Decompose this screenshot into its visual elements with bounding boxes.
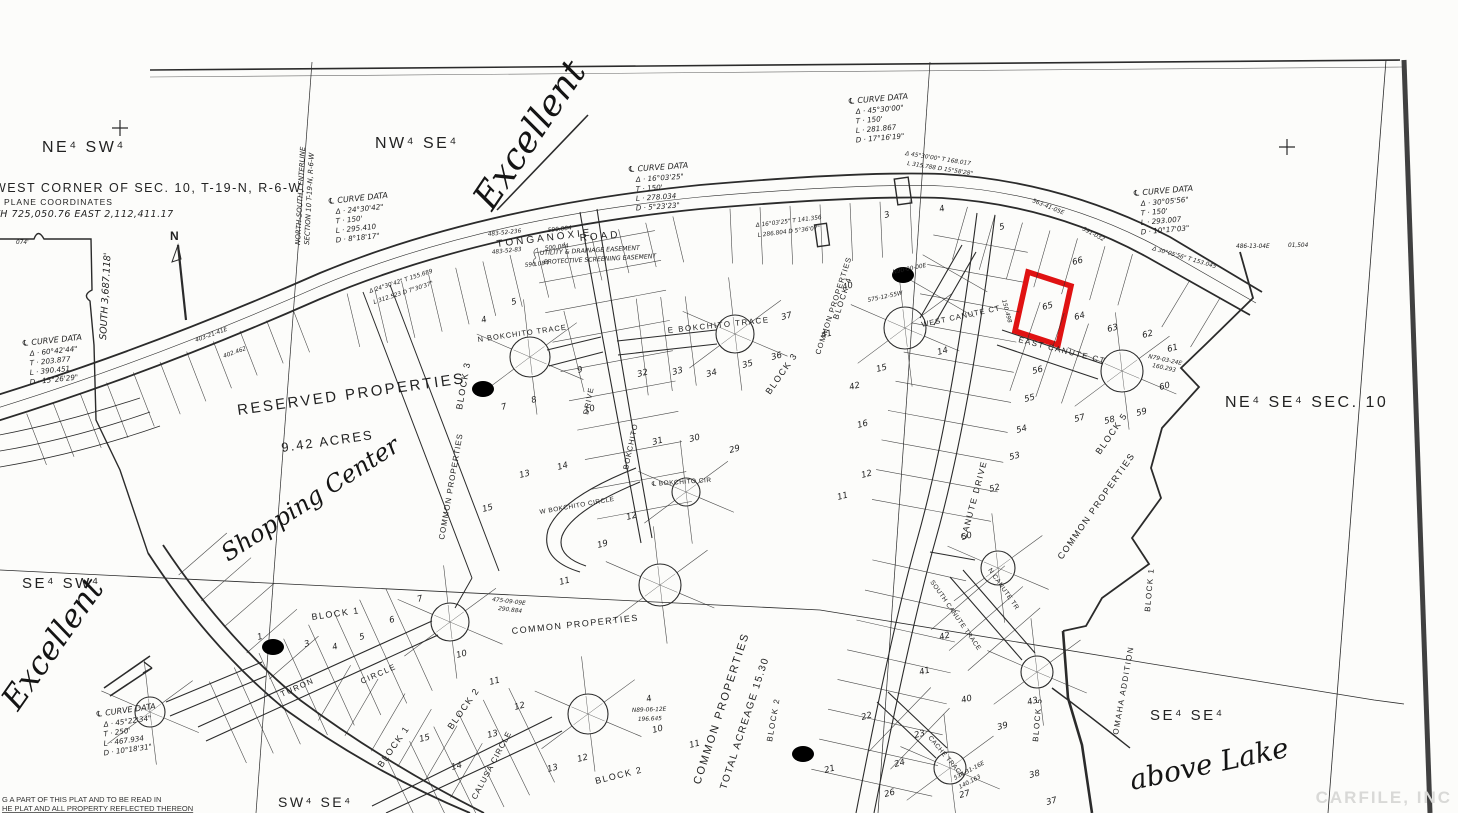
lot-line	[318, 665, 350, 720]
lot-number: 5	[510, 297, 518, 308]
lot-line	[959, 362, 1014, 372]
bulb-spoke	[645, 585, 660, 596]
lot-number-circle	[262, 639, 284, 655]
lot-line	[952, 207, 967, 260]
lot-line	[955, 273, 987, 292]
lot-line	[152, 727, 157, 765]
lot-number: 13	[486, 728, 499, 740]
block-label: BLOCK 2	[594, 764, 644, 785]
area-label: COMMON PROPERTIES	[813, 256, 853, 356]
lot-line	[876, 470, 937, 481]
lot-line	[730, 209, 733, 264]
bulb-spoke	[530, 346, 545, 357]
lot-line	[688, 506, 693, 544]
section-label: NW⁴ SE⁴	[375, 135, 459, 152]
lot-line	[1191, 298, 1220, 347]
lot-line	[820, 205, 823, 264]
street-label: ℄ BOKCHITO CIR	[651, 477, 712, 488]
lot-line	[948, 546, 983, 561]
lot-line	[483, 261, 496, 315]
lot-line	[162, 681, 193, 703]
lot-number: 37	[1045, 795, 1059, 808]
lot-line	[872, 783, 932, 796]
bulb-spoke	[888, 320, 905, 328]
lot-number: 7	[500, 402, 508, 413]
lot-line	[1162, 280, 1190, 327]
lot-number: 41	[820, 328, 833, 340]
bulb-spoke	[903, 309, 905, 328]
lot-number: 19	[596, 538, 609, 550]
area-label: COMMON PROPERTIES	[437, 432, 465, 540]
handwriting-strokes	[104, 115, 1130, 748]
lot-line	[910, 200, 912, 253]
lot-line	[931, 510, 990, 521]
lot-line	[532, 735, 555, 782]
lot-line	[790, 206, 793, 265]
lot-line	[383, 652, 407, 704]
lot-number: 34	[705, 367, 718, 379]
lot-line	[535, 691, 570, 706]
bulb-spoke	[450, 622, 466, 629]
bulb-spoke	[890, 328, 905, 339]
lot-line	[661, 297, 667, 344]
bulb-spoke	[450, 612, 464, 622]
lot-line	[942, 451, 1003, 462]
lot-line	[900, 747, 935, 762]
south-dimension-label: SOUTH 3,687.118'	[98, 252, 114, 340]
lot-number: 5	[998, 222, 1006, 233]
section-label: NE⁴ SE⁴ SEC. 10	[1225, 394, 1388, 411]
lot-line	[673, 216, 684, 262]
plus-mark	[112, 120, 128, 136]
bulb-spoke	[574, 714, 588, 725]
lot-line	[892, 692, 947, 704]
lot-number: 32	[636, 367, 649, 379]
lot-number: 24	[893, 757, 906, 769]
lot-number: 3	[883, 210, 891, 221]
lot-line	[345, 679, 378, 736]
bulb-spoke	[450, 622, 452, 639]
street-label: SOUTH CANUTE TRACE	[928, 579, 982, 652]
bulb-spoke	[643, 577, 660, 585]
lot-line	[689, 345, 719, 368]
dimension-label: N89-06-12E	[632, 707, 667, 714]
lot-line	[509, 688, 532, 735]
bulb-spoke	[686, 485, 696, 492]
lot-number: 11	[688, 738, 701, 750]
lot-number: 41	[918, 665, 931, 677]
lot-line	[653, 526, 657, 564]
bulb-spoke	[436, 622, 450, 632]
lot-number: 57	[1073, 412, 1087, 425]
lot-line	[539, 272, 600, 283]
lot-number: 15	[418, 732, 431, 744]
street-label: E BOKCHITO TRACE	[667, 315, 770, 335]
lot-line	[254, 710, 274, 753]
lot-number: 1	[256, 632, 264, 643]
bulb-spoke	[1122, 371, 1139, 378]
bulb-spoke	[1025, 672, 1037, 681]
bulb-spoke	[588, 714, 590, 732]
block-label: BLOCK 2	[765, 697, 782, 742]
lot-line	[847, 650, 899, 662]
street-label: TURON	[279, 676, 316, 699]
lot-number: 5	[358, 632, 366, 643]
bulb-spoke	[1122, 371, 1124, 390]
lot-line	[677, 550, 708, 572]
lot-line	[606, 562, 641, 577]
lot-line	[872, 560, 919, 570]
lot-line	[1012, 535, 1043, 557]
bulb-spoke	[905, 328, 907, 347]
lot-line	[606, 290, 666, 301]
area-label: COMMON PROPERTIES	[1055, 451, 1137, 561]
bulb-spoke	[660, 585, 677, 592]
bulb-spoke	[950, 768, 952, 782]
street-label: W BOKCHITO CIRCLE	[539, 496, 615, 516]
east-boundary-jagged	[1063, 252, 1253, 631]
bulb-spoke	[1122, 360, 1137, 371]
dimension-label: 196.645	[638, 716, 662, 723]
bulb-spoke	[674, 487, 686, 492]
lot-line	[386, 589, 409, 640]
lot-number: 11	[558, 575, 571, 587]
lot-number: 39	[996, 720, 1009, 732]
lot-line	[963, 736, 994, 758]
lot-line	[27, 414, 47, 465]
common-properties-strip	[363, 285, 499, 578]
lot-line	[920, 294, 970, 303]
small-structure	[894, 177, 911, 205]
street-label: EAST CANUTE CT	[1018, 335, 1107, 365]
bulb-spoke	[434, 615, 450, 622]
lot-line	[900, 687, 931, 719]
lot-line	[923, 255, 955, 274]
lot-number: 13	[546, 762, 559, 774]
lot-line	[468, 629, 503, 644]
handwritten-note: Excellent	[465, 53, 595, 218]
lot-number: 4	[938, 204, 946, 215]
lot-line	[201, 558, 251, 601]
dimension-label: 01,504	[1288, 243, 1309, 249]
bulb-spoke	[1037, 672, 1039, 686]
street-label: WEST CANUTE CT	[921, 303, 1002, 329]
bulb-spoke	[686, 492, 698, 497]
bulb-spoke	[150, 712, 162, 717]
lot-number: 50	[960, 530, 973, 542]
lot-line	[53, 403, 74, 456]
lot-line	[644, 500, 674, 523]
dimension-label: 402.462	[223, 346, 248, 360]
block-label: BLOCK 1	[1143, 567, 1156, 612]
corner-note-line3: TH 725,050.76 EAST 2,112,411.17	[0, 209, 174, 220]
lot-line	[663, 606, 668, 644]
bulb-spoke	[530, 357, 532, 375]
lot-number: 62	[1141, 328, 1154, 340]
bulb-spoke	[588, 714, 605, 721]
lot-number: 31	[651, 435, 664, 447]
lot-number: 22	[860, 710, 873, 722]
bulb-spoke	[676, 492, 686, 500]
lot-line	[811, 769, 871, 782]
right-border-thick-line	[1404, 60, 1430, 813]
lot-number: 54	[1015, 423, 1028, 435]
lot-line	[209, 681, 228, 722]
lot-line	[851, 305, 886, 320]
lot-line	[636, 299, 642, 347]
lot-number: 35	[741, 358, 754, 370]
lot-line	[981, 244, 1028, 253]
bulb-spoke	[1037, 663, 1049, 672]
lot-number: 6	[388, 615, 396, 626]
street-label: N CANUTE TR	[986, 567, 1020, 611]
lot-line	[331, 675, 354, 725]
lot-line	[685, 296, 691, 341]
lot-line	[334, 612, 357, 664]
lot-number: 10	[455, 648, 468, 660]
lot-number: 14	[936, 345, 949, 357]
lot-number: 42	[848, 380, 861, 392]
dimension-label: 575-12-55W	[867, 291, 903, 304]
lot-line	[409, 640, 432, 691]
lot-line	[234, 668, 254, 711]
lot-line	[699, 497, 734, 512]
lot-number: 11	[488, 675, 501, 687]
lot-line	[160, 362, 180, 414]
lot-line	[865, 590, 912, 601]
dimension-label: 475-09-09E	[492, 597, 526, 607]
lot-line	[444, 565, 448, 603]
north-arrow: N	[170, 229, 186, 320]
lot-line	[896, 381, 954, 392]
lot-line	[904, 352, 959, 362]
corner-note-line2: E PLANE COORDINATES	[0, 197, 113, 207]
lot-line	[386, 756, 406, 797]
lot-line	[404, 633, 434, 656]
lot-line	[872, 499, 931, 510]
lot-line	[1010, 347, 1025, 391]
lot-number: 4	[331, 642, 339, 653]
lot-number: 65	[1041, 300, 1054, 312]
lot-line	[979, 215, 995, 270]
lot-line	[850, 203, 853, 261]
section-label: SE⁴ SE⁴	[1150, 707, 1225, 724]
lot-line	[80, 393, 101, 448]
lot-line	[604, 680, 635, 702]
lot-line	[888, 410, 948, 421]
lot-number: 61	[1166, 342, 1179, 354]
lot-line	[259, 653, 280, 699]
dimension-label: 563-41-05E	[1031, 198, 1065, 216]
curve-data-row: D · 5°23'23"	[636, 200, 681, 212]
bulb-spoke	[905, 317, 920, 328]
lot-line	[628, 411, 679, 420]
lot-number: 56	[1031, 364, 1045, 377]
corner-note-line1: WEST CORNER OF SEC. 10, T-19-N, R-6-W.	[0, 181, 306, 195]
lot-line	[456, 268, 469, 324]
lot-line	[581, 656, 585, 694]
lot-line	[975, 273, 1023, 282]
lot-number: 38	[1028, 768, 1042, 781]
boundary-road-edge	[163, 545, 484, 813]
lot-line	[431, 784, 452, 813]
bulb-spoke	[588, 703, 603, 714]
lot-line	[838, 679, 893, 691]
lot-line	[987, 651, 1022, 666]
lot-line	[679, 593, 714, 608]
lot-line	[213, 341, 231, 388]
lot-line	[101, 691, 136, 706]
plat-map-page: N WEST CORNER OF SEC. 10, T-19-N, R-6-W.…	[0, 0, 1458, 813]
lot-number: 26	[883, 787, 897, 800]
section-label: NE⁴ SW⁴	[42, 139, 126, 156]
bulb-spoke	[938, 768, 950, 777]
bulb-spoke	[735, 334, 751, 341]
north-arrow-label: N	[170, 229, 179, 243]
lot-number: 11	[836, 490, 849, 502]
lot-number-circle	[472, 381, 494, 397]
lot-number: 14	[556, 460, 569, 472]
lot-line	[506, 748, 529, 796]
lot-line	[1090, 246, 1105, 300]
lot-line	[948, 421, 1008, 432]
lot-line	[398, 599, 433, 614]
footer-note-line1: G A PART OF THIS PLAT AND TO BE READ IN	[2, 795, 161, 804]
map-border-lines	[0, 60, 1430, 813]
lot-line	[1036, 355, 1050, 397]
lot-line	[1125, 392, 1130, 430]
lot-number: 15	[875, 362, 888, 374]
lot-number: 3	[303, 639, 311, 650]
lot-line	[590, 734, 595, 772]
dimension-label: Δ 30°05'56" T 153.045	[1150, 246, 1217, 270]
plus-mark	[1279, 139, 1295, 155]
lot-number-circle	[792, 746, 814, 762]
bulb-spoke	[658, 566, 660, 585]
area-label: OMAHA ADDITION	[1111, 645, 1135, 735]
lot-number: 13	[518, 468, 531, 480]
lot-number: 23	[913, 728, 926, 740]
lot-line	[309, 625, 332, 675]
lot-line	[360, 600, 384, 652]
lot-number: 12	[576, 752, 589, 764]
lot-line	[1075, 384, 1105, 407]
lot-line	[1014, 575, 1049, 590]
bulb-spoke	[1107, 371, 1122, 382]
lot-line	[953, 392, 1011, 403]
bulb-spoke	[721, 334, 735, 344]
lot-number: 36	[770, 350, 784, 363]
bulb-spoke	[448, 605, 450, 622]
lot-line	[267, 321, 284, 364]
lot-line	[952, 784, 957, 813]
lot-number: 16	[856, 418, 870, 431]
lot-number: 10	[583, 403, 596, 415]
lot-number: 64	[1073, 310, 1086, 322]
lot-number: 53	[1008, 450, 1021, 462]
bulb-spoke	[586, 696, 588, 714]
lot-line	[1052, 678, 1087, 693]
bulb-spoke	[996, 553, 998, 568]
bulb-spoke	[735, 334, 737, 351]
street-label: BOKCHITO	[621, 423, 640, 471]
bulb-spoke	[528, 339, 530, 357]
lot-number: 4	[480, 315, 488, 326]
lot-line	[858, 341, 888, 364]
watermark: CARFILE, INC	[1316, 788, 1452, 807]
bulb-spoke	[660, 574, 675, 585]
lot-line	[164, 718, 199, 733]
bulb-spoke	[1105, 363, 1122, 371]
bulb-spoke	[1024, 666, 1037, 672]
bulb-spoke	[516, 357, 530, 368]
lot-number: 40	[960, 693, 973, 705]
lot-number: 33	[671, 365, 684, 377]
lot-number: 12	[625, 510, 638, 522]
dimension-label: 150.498	[1000, 299, 1012, 324]
lot-number: 8	[530, 395, 538, 406]
lot-line	[280, 699, 301, 745]
lot-line	[856, 620, 905, 631]
plat-map: N WEST CORNER OF SEC. 10, T-19-N, R-6-W.…	[0, 0, 1458, 813]
lot-number: 52	[988, 482, 1001, 494]
lot-line	[452, 641, 457, 679]
lot-number: 30	[688, 432, 701, 444]
lot-line	[1118, 254, 1133, 305]
lot-number: 55	[1023, 392, 1036, 404]
lot-number: 29	[728, 443, 741, 455]
lot-line	[179, 533, 227, 575]
street-label: CANUTE DRIVE	[958, 459, 989, 540]
area-label: COMMON PROPERTIES	[691, 631, 752, 786]
lot-number: 7	[416, 594, 424, 605]
lot-line	[964, 333, 1016, 343]
lot-number: 9	[576, 365, 584, 376]
lot-line	[622, 381, 675, 391]
lot-number: 12	[860, 468, 873, 480]
lot-number: 63	[1106, 322, 1119, 334]
block-label: BLOCK 1	[311, 605, 360, 622]
handwritten-note: Excellent	[0, 571, 111, 718]
street-label: CIRCLE	[359, 662, 398, 686]
bulb-spoke	[1037, 672, 1050, 678]
lot-line	[606, 722, 641, 737]
street-label: CALUSA CIRCLE	[470, 729, 514, 800]
area-label: COMMON PROPERTIES	[511, 613, 639, 636]
handwritten-note: above Lake	[1127, 731, 1292, 797]
lot-line	[293, 310, 309, 352]
lot-line	[458, 713, 481, 760]
omaha-addition-boundary	[1063, 631, 1092, 813]
lot-line	[922, 293, 953, 315]
bulb-spoke	[905, 328, 922, 335]
footer-note-line2: HE PLAT AND ALL PROPERTY REFLECTED THERE…	[2, 804, 193, 813]
dimension-label: 290.884	[498, 606, 523, 615]
lot-line	[542, 726, 572, 749]
street-label: ROAD	[579, 229, 621, 244]
dimension-label: 590.084	[525, 260, 550, 269]
lot-line	[737, 353, 742, 391]
lot-line	[228, 722, 247, 763]
lot-line	[907, 778, 937, 801]
lot-line	[187, 352, 206, 402]
dimension-label: 074'	[16, 240, 29, 246]
lot-number: 37	[780, 310, 794, 323]
bulb-spoke	[1035, 658, 1037, 672]
bulb-spoke	[998, 568, 1012, 574]
lot-line	[224, 583, 274, 627]
lot-line	[729, 277, 733, 315]
